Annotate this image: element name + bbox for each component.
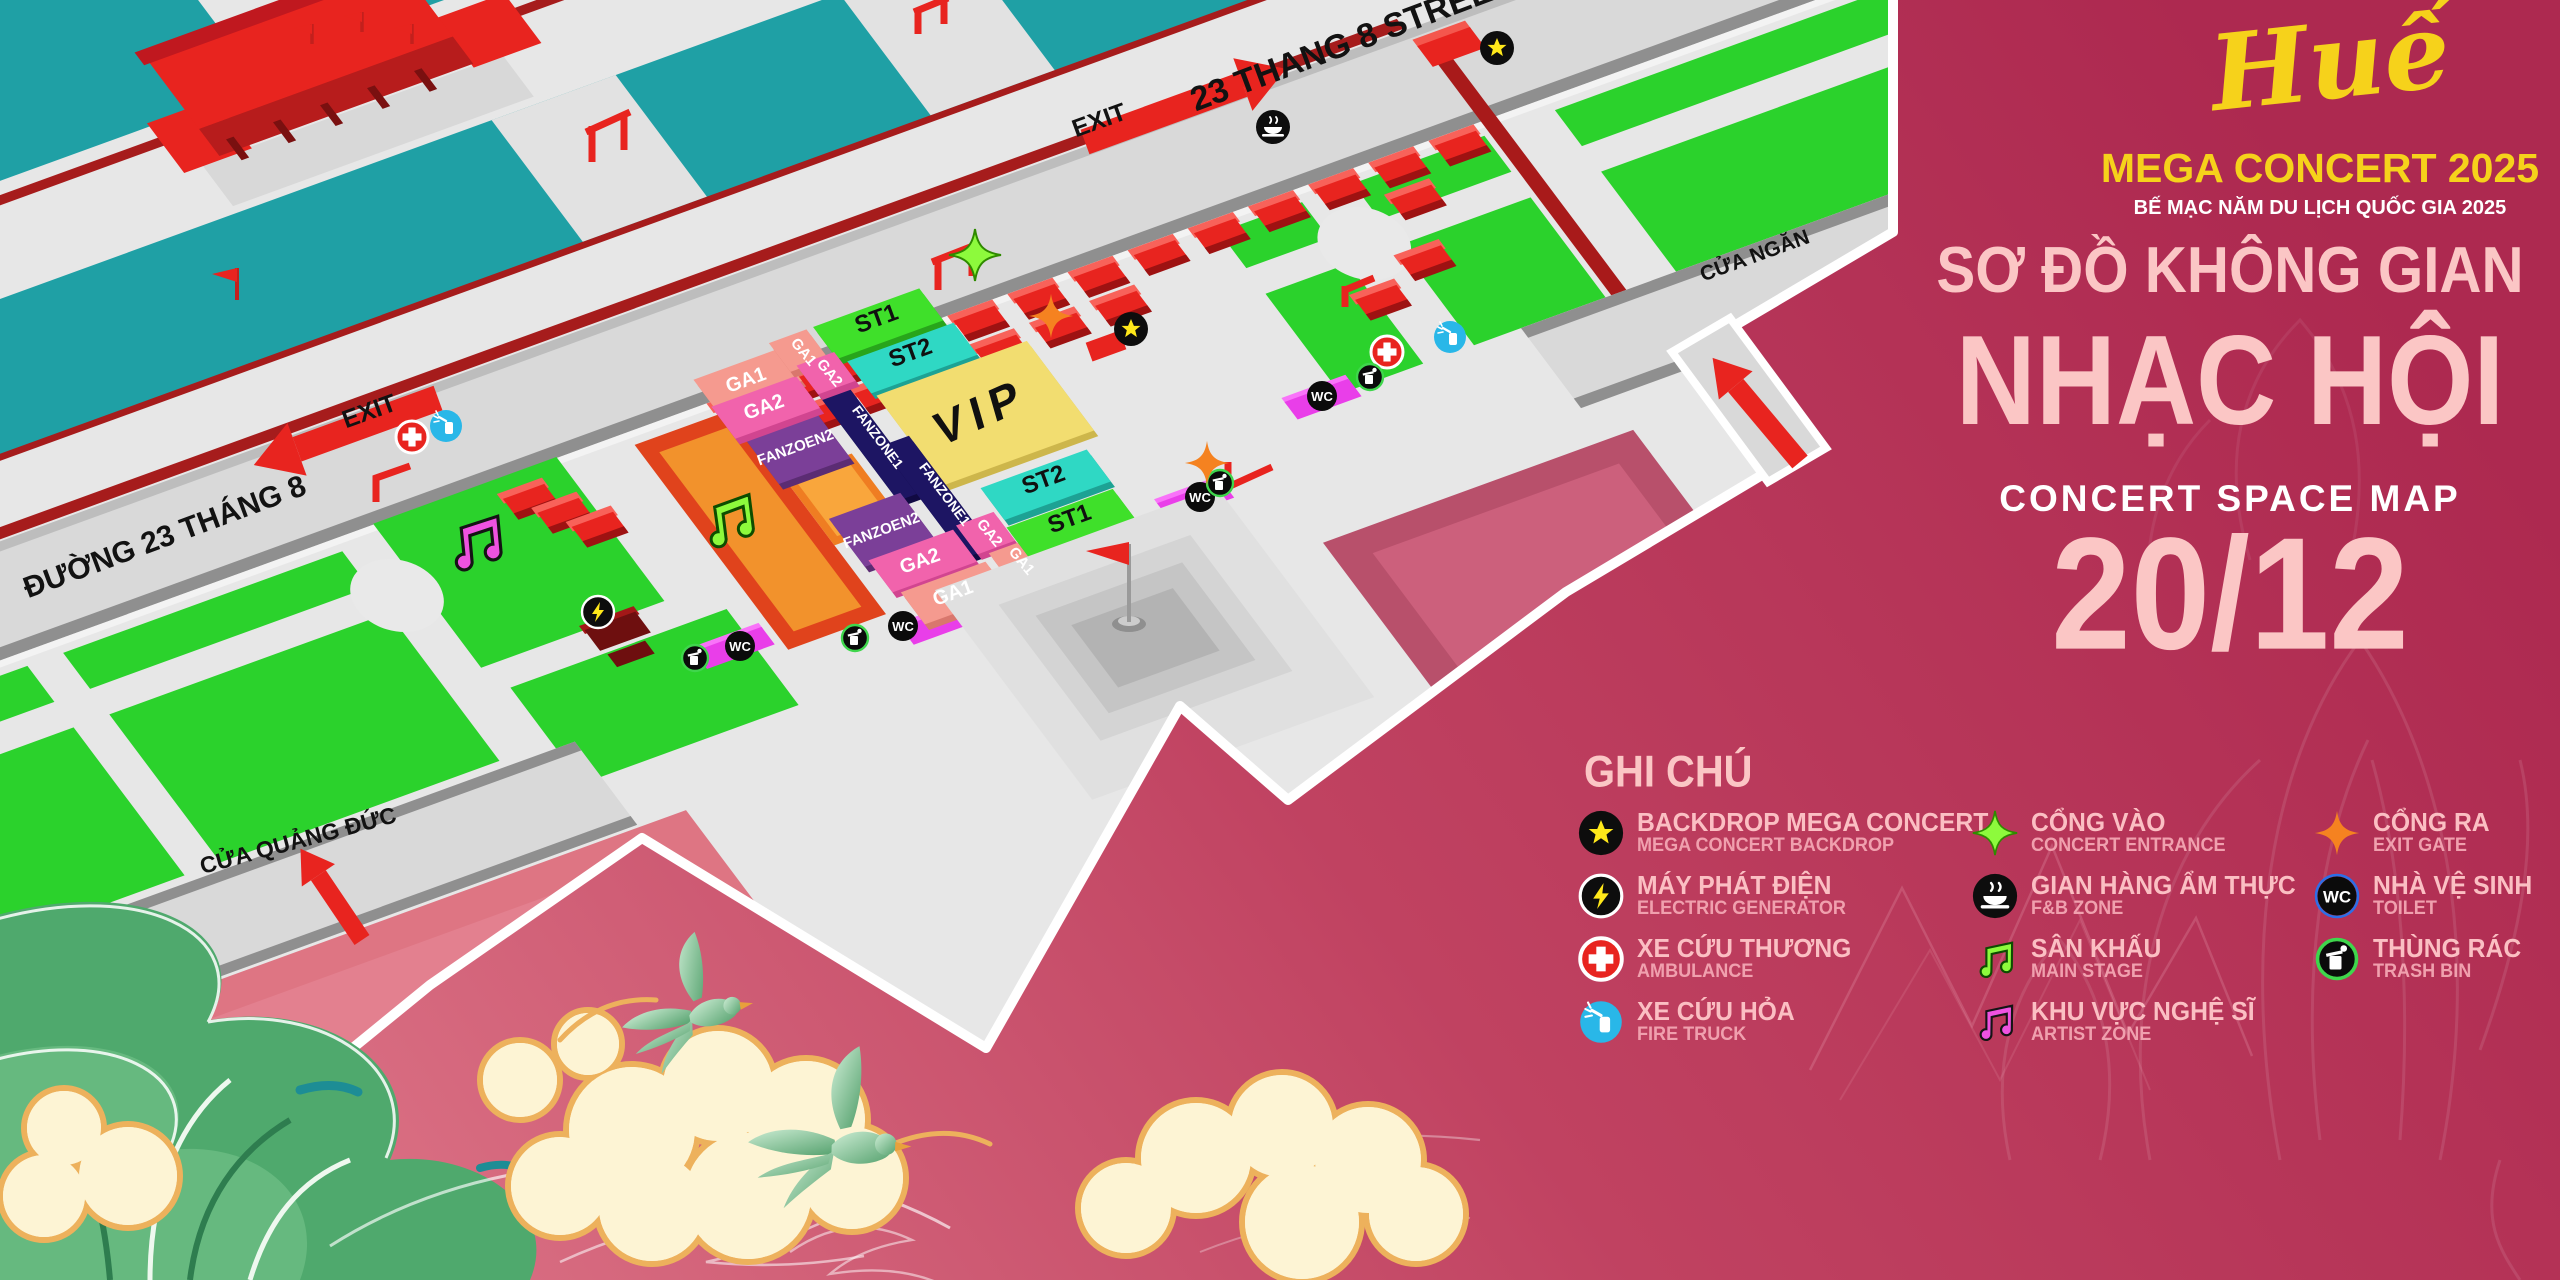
legend-item-fire-truck: XE CỨU HỎAFIRE TRUCK [1578, 997, 2007, 1047]
legend-item-main-stage: SÂN KHẤUMAIN STAGE [1972, 934, 2310, 984]
map-title-vi-line2: NHẠC HỘI [1929, 317, 2531, 444]
legend-title: GHI CHÚ [1584, 747, 1752, 797]
legend-column-3: CỔNG RAEXIT GATE NHÀ VỆ SINHTOILET THÙNG… [2314, 808, 2541, 984]
legend-item-ambulance: XE CỨU THƯƠNGAMBULANCE [1578, 934, 2007, 984]
legend-item-exit-gate: CỔNG RAEXIT GATE [2314, 808, 2541, 858]
backdrop-star-icon [1578, 810, 1624, 856]
fire-truck-icon [1578, 999, 1624, 1045]
legend-item-toilet: NHÀ VỆ SINHTOILET [2314, 871, 2541, 921]
event-date: 20/12 [1929, 514, 2531, 674]
legend-column-1: BACKDROP MEGA CONCERTMEGA CONCERT BACKDR… [1578, 808, 2007, 1047]
legend-item-entrance: CỔNG VÀOCONCERT ENTRANCE [1972, 808, 2310, 858]
legend-item-artist-zone: KHU VỰC NGHỆ SĨARTIST ZONE [1972, 997, 2310, 1047]
entrance-sparkle-icon [1972, 810, 2018, 856]
poster-canvas: WC [0, 0, 2560, 1280]
trash-icon [2314, 936, 2360, 982]
main-stage-note-icon [1972, 936, 2018, 982]
fnb-bowl-icon [1972, 873, 2018, 919]
toilet-icon [2314, 873, 2360, 919]
exit-sparkle-icon [2314, 810, 2360, 856]
legend-item-trash: THÙNG RÁCTRASH BIN [2314, 934, 2541, 984]
event-subtitle: BẾ MẠC NĂM DU LỊCH QUỐC GIA 2025 [2070, 198, 2560, 218]
ambulance-icon [1578, 936, 1624, 982]
event-title: MEGA CONCERT 2025 [2070, 148, 2560, 189]
legend-item-generator: MÁY PHÁT ĐIỆNELECTRIC GENERATOR [1578, 871, 2007, 921]
artist-zone-note-icon [1972, 999, 2018, 1045]
legend-item-fnb: GIAN HÀNG ẨM THỰCF&B ZONE [1972, 871, 2310, 921]
generator-icon [1578, 873, 1624, 919]
legend-column-2: CỔNG VÀOCONCERT ENTRANCE GIAN HÀNG ẨM TH… [1972, 808, 2310, 1047]
legend-item-backdrop: BACKDROP MEGA CONCERTMEGA CONCERT BACKDR… [1578, 808, 2007, 858]
map-title-vi-line1: SƠ ĐỒ KHÔNG GIAN [1929, 238, 2531, 303]
